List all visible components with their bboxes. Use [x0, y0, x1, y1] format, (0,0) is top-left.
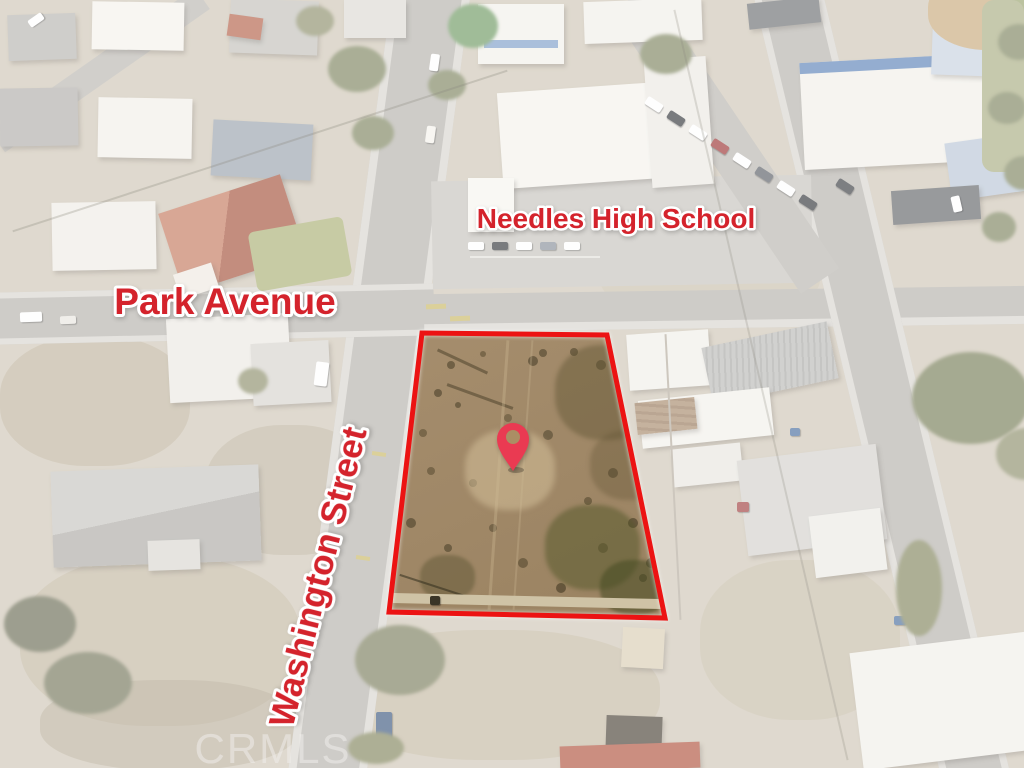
parcel-outline [389, 333, 665, 618]
park-avenue-label: Park Avenue [114, 281, 335, 322]
pin-hole [506, 430, 520, 444]
aerial-listing-photo: Needles High School Park Avenue Washingt… [0, 0, 1024, 768]
pin-shadow [508, 467, 524, 473]
annotation-layer: Needles High School Park Avenue Washingt… [0, 0, 1024, 768]
location-pin-icon [497, 423, 529, 471]
crmls-watermark: CRMLS [194, 725, 351, 768]
washington-street-label: Washington Street [262, 423, 374, 731]
school-label: Needles High School [477, 203, 756, 234]
